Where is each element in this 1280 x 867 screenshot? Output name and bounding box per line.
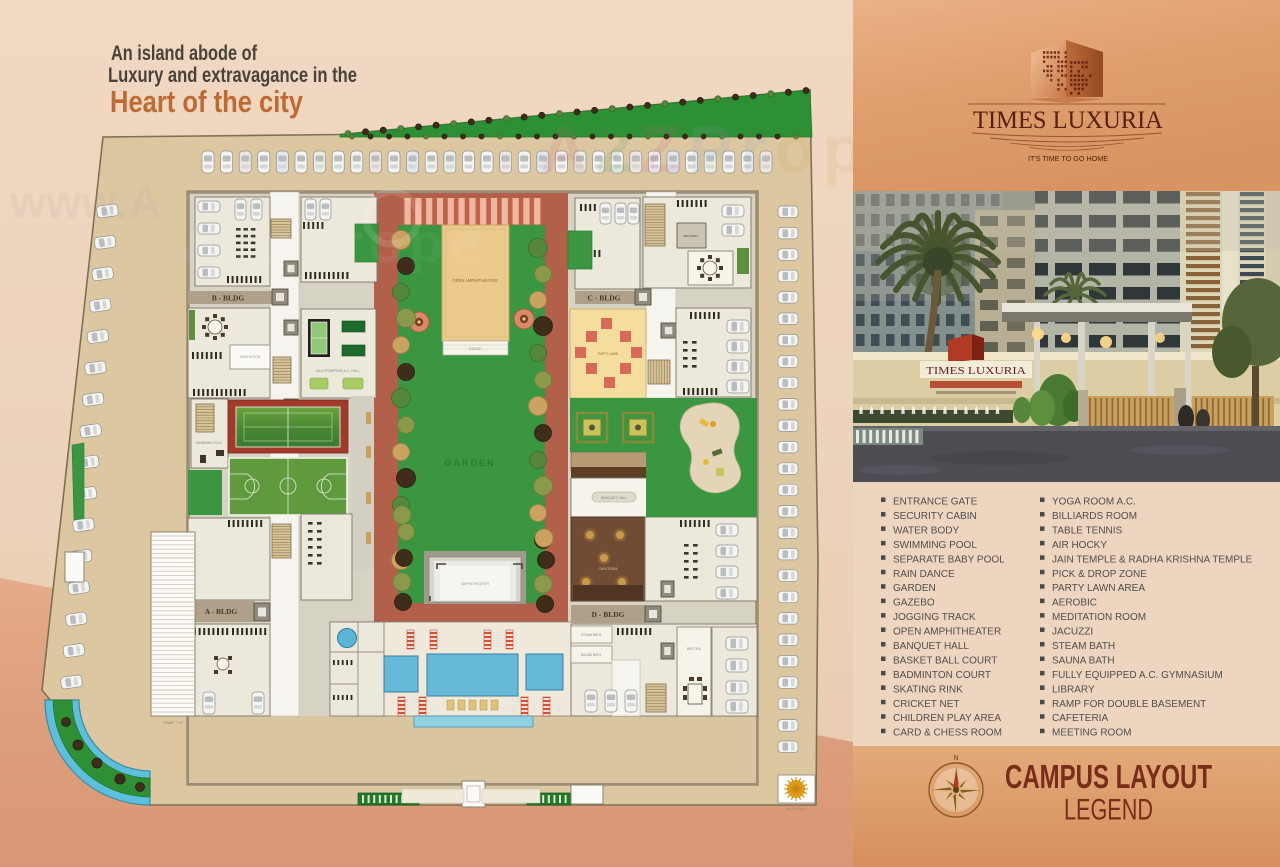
- svg-text:A2ZProp: A2ZProp: [540, 112, 871, 186]
- svg-text:PARTY LAWN AREA: PARTY LAWN AREA: [1052, 583, 1145, 594]
- svg-text:BANQUET HALL: BANQUET HALL: [893, 641, 969, 652]
- svg-text:C - BLDG: C - BLDG: [588, 294, 621, 303]
- svg-text:ENTRANCE: ENTRANCE: [786, 807, 806, 811]
- svg-text:PICK & DROP ZONE: PICK & DROP ZONE: [1052, 569, 1147, 580]
- svg-text:PARTY LAWN: PARTY LAWN: [598, 352, 619, 356]
- svg-text:SECURITY: SECURITY: [683, 234, 698, 238]
- svg-text:ENTRANCE GATE: ENTRANCE GATE: [893, 497, 978, 508]
- svg-text:AEROBIC: AEROBIC: [1052, 598, 1097, 609]
- svg-text:MEETING ROOM: MEETING ROOM: [1052, 728, 1131, 739]
- svg-text:RAMP 7 M: RAMP 7 M: [163, 720, 182, 725]
- svg-text:A2zPrope: A2zPrope: [180, 211, 486, 274]
- svg-text:BADMINTON COURT: BADMINTON COURT: [893, 670, 991, 681]
- svg-text:CAFETERIA: CAFETERIA: [1052, 713, 1108, 724]
- svg-text:MULTIPURPOSE A.C. HALL: MULTIPURPOSE A.C. HALL: [316, 369, 359, 373]
- svg-text:JOGGING TRACK: JOGGING TRACK: [893, 612, 976, 623]
- svg-text:AIR HOCKY: AIR HOCKY: [1052, 540, 1107, 551]
- svg-text:GAZEBO: GAZEBO: [893, 598, 935, 609]
- svg-text:BANQUET HALL: BANQUET HALL: [601, 496, 627, 500]
- svg-text:STAGE: STAGE: [469, 347, 482, 351]
- svg-text:SAUNA BATH: SAUNA BATH: [581, 653, 602, 657]
- svg-text:LEGEND: LEGEND: [1064, 794, 1153, 827]
- svg-text:OPEN AMPHITHEATER: OPEN AMPHITHEATER: [452, 278, 497, 283]
- svg-text:BASKET BALL COURT: BASKET BALL COURT: [893, 656, 997, 667]
- svg-text:SKATING RINK: SKATING RINK: [893, 684, 963, 695]
- svg-text:Heart of the city: Heart of the city: [110, 84, 304, 119]
- svg-text:SAUNA BATH: SAUNA BATH: [1052, 656, 1115, 667]
- svg-text:GARDEN: GARDEN: [444, 458, 495, 468]
- svg-text:CAMPUS LAYOUT: CAMPUS LAYOUT: [1005, 758, 1212, 795]
- svg-text:BILLIARDS ROOM: BILLIARDS ROOM: [1052, 511, 1137, 522]
- svg-text:www.A: www.A: [9, 176, 162, 228]
- svg-text:MEDITATION ROOM: MEDITATION ROOM: [1052, 612, 1146, 623]
- svg-text:CAFETERIA: CAFETERIA: [598, 567, 618, 571]
- svg-text:TIMES LUXURIA: TIMES LUXURIA: [926, 365, 1026, 377]
- svg-text:JAIN TEMPLE & RADHA KRISHNA TE: JAIN TEMPLE & RADHA KRISHNA TEMPLE: [1052, 554, 1253, 565]
- svg-text:WATER BODY: WATER BODY: [893, 525, 959, 536]
- svg-text:STEAM BATH: STEAM BATH: [581, 633, 602, 637]
- svg-text:MEDITATION: MEDITATION: [240, 355, 261, 359]
- svg-text:GARDEN: GARDEN: [893, 583, 936, 594]
- svg-text:RAMP FOR DOUBLE BASEMENT: RAMP FOR DOUBLE BASEMENT: [1052, 699, 1206, 710]
- svg-text:N: N: [953, 755, 958, 762]
- svg-text:OPEN AMPHITHEATER: OPEN AMPHITHEATER: [893, 627, 1001, 638]
- svg-text:YOGA ROOM A.C.: YOGA ROOM A.C.: [1052, 497, 1136, 508]
- svg-text:TABLE TENNIS: TABLE TENNIS: [1052, 525, 1123, 536]
- svg-text:SEPARATE BABY POOL: SEPARATE BABY POOL: [893, 554, 1005, 565]
- svg-text:SWIMMING POOL: SWIMMING POOL: [893, 540, 977, 551]
- svg-text:IT'S TIME TO GO HOME: IT'S TIME TO GO HOME: [1028, 154, 1108, 163]
- svg-text:RAIN DANCE: RAIN DANCE: [893, 569, 955, 580]
- svg-text:SECURITY CABIN: SECURITY CABIN: [893, 511, 977, 522]
- svg-text:AMPHITHEATER: AMPHITHEATER: [461, 582, 489, 586]
- svg-text:SWIMMING POOL: SWIMMING POOL: [196, 441, 223, 445]
- svg-text:LIBRARY: LIBRARY: [1052, 684, 1095, 695]
- svg-text:D - BLDG: D - BLDG: [592, 610, 625, 619]
- svg-text:CARD & CHESS ROOM: CARD & CHESS ROOM: [893, 728, 1002, 739]
- svg-text:CRICKET NET: CRICKET NET: [893, 699, 960, 710]
- svg-text:FULLY EQUIPPED A.C. GYMNASIUM: FULLY EQUIPPED A.C. GYMNASIUM: [1052, 670, 1223, 681]
- svg-text:B - BLDG: B - BLDG: [212, 294, 245, 303]
- svg-text:An island abode of: An island abode of: [111, 42, 258, 65]
- svg-text:A - BLDG: A - BLDG: [205, 607, 238, 616]
- svg-text:STEAM BATH: STEAM BATH: [1052, 641, 1115, 652]
- svg-text:JACUZZI: JACUZZI: [1052, 627, 1093, 638]
- svg-text:MEETING: MEETING: [687, 647, 702, 651]
- svg-text:CHILDREN PLAY AREA: CHILDREN PLAY AREA: [893, 713, 1001, 724]
- svg-text:TIMES LUXURIA: TIMES LUXURIA: [973, 107, 1163, 134]
